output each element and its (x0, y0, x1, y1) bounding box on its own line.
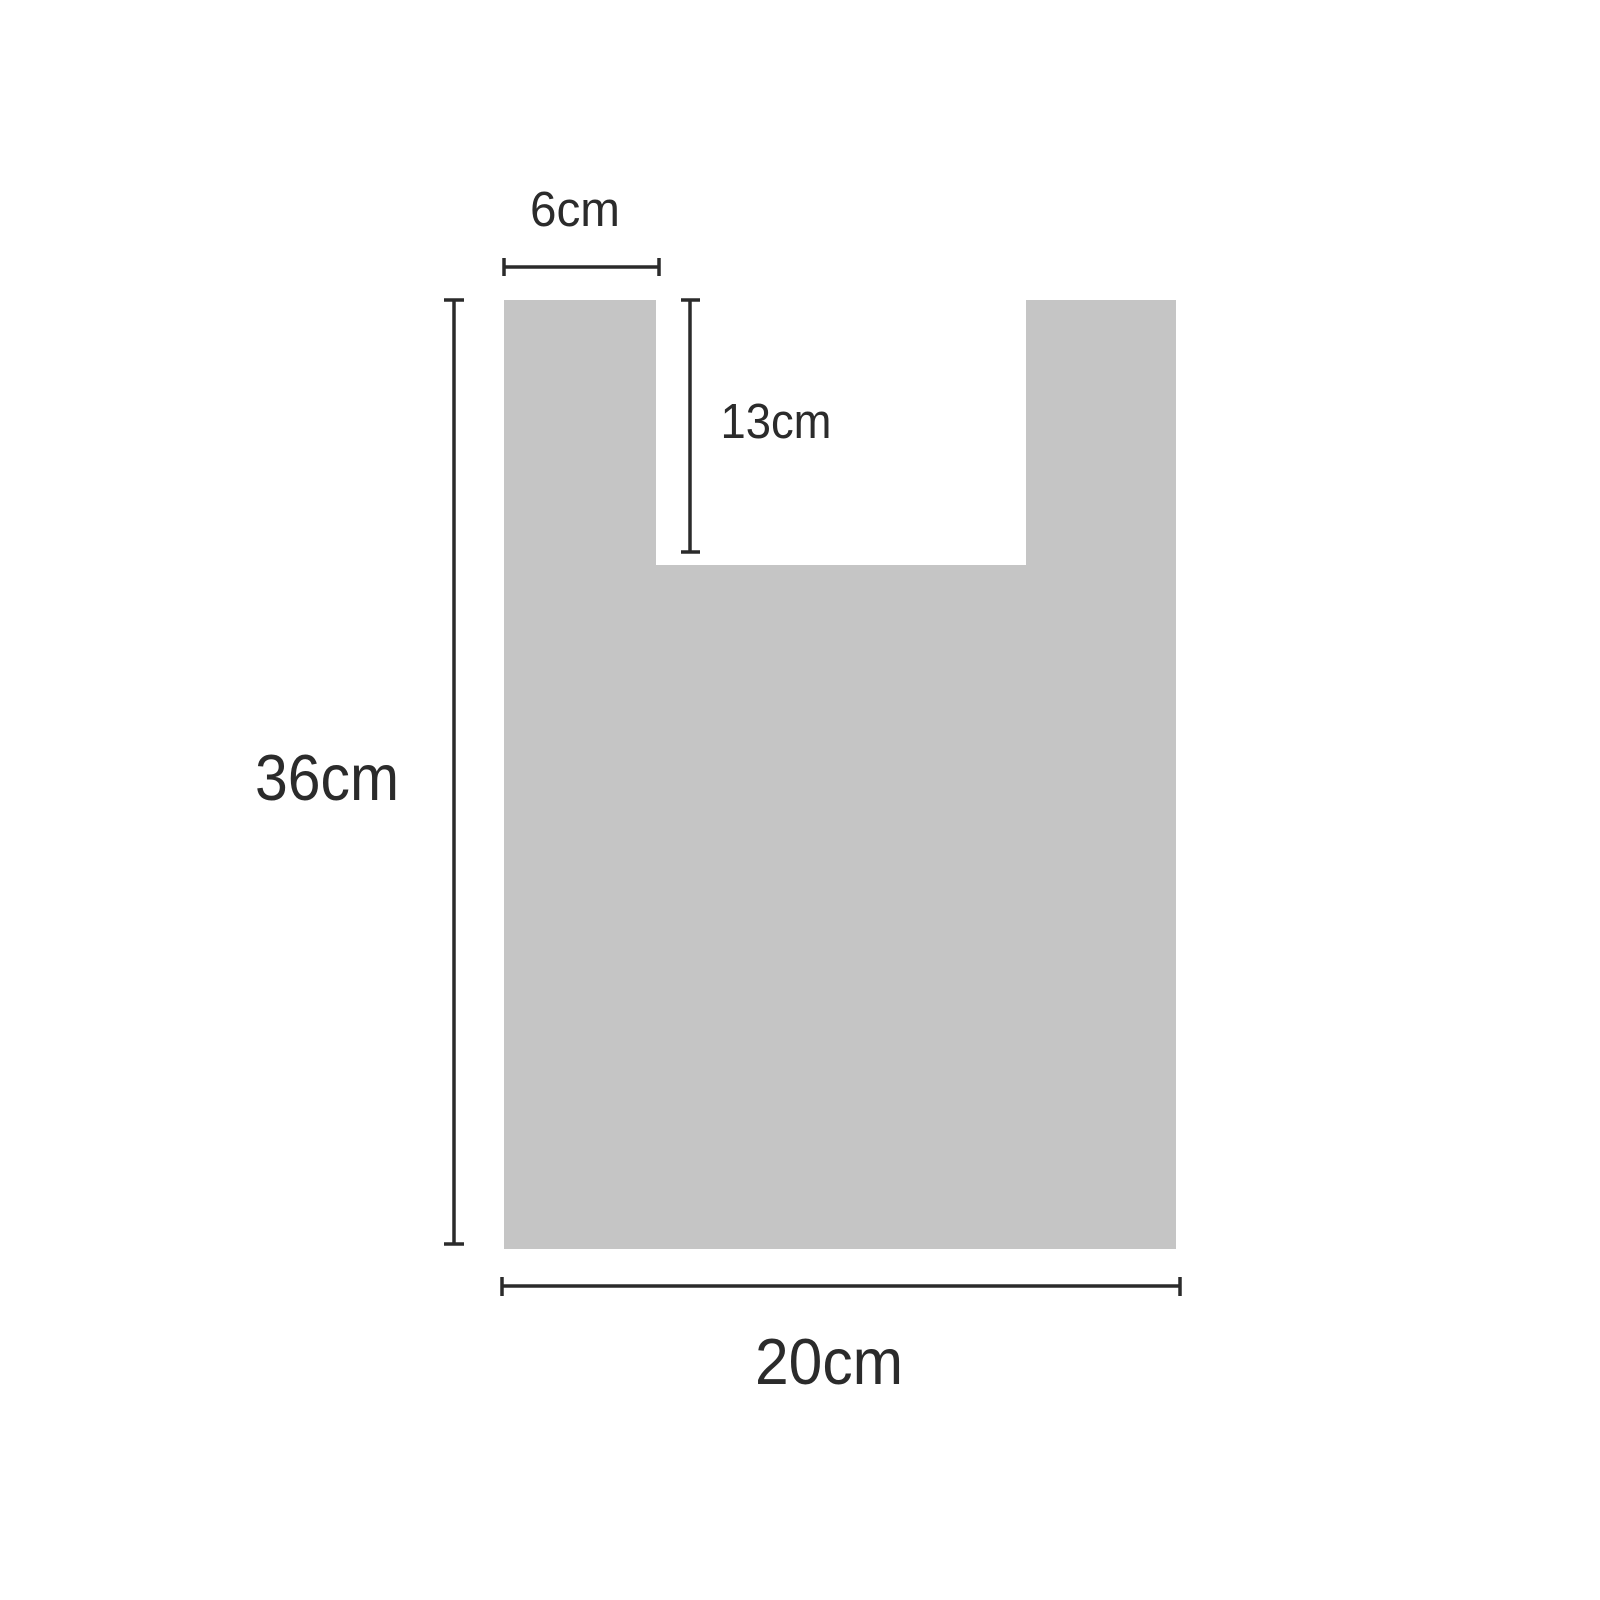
svg-text:6cm: 6cm (530, 183, 620, 237)
svg-text:36cm: 36cm (255, 741, 399, 814)
svg-text:20cm: 20cm (755, 1325, 903, 1398)
svg-text:13cm: 13cm (721, 395, 832, 449)
